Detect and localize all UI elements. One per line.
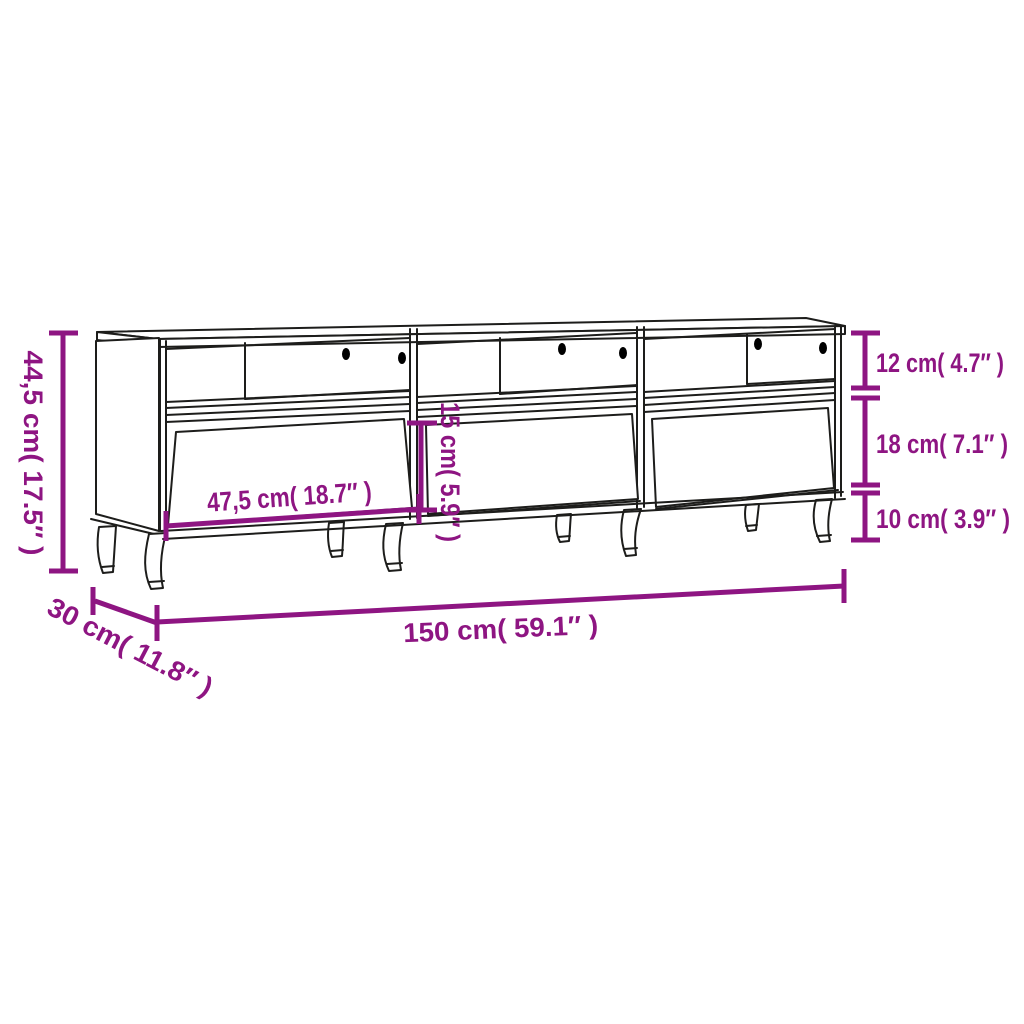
top-section-dimension-label: 12 cm( 4.7″ ) (876, 348, 1004, 378)
leg-rear-4 (745, 504, 759, 531)
drawer-height-dimension-label: 15 cm( 5.9″ ) (435, 402, 465, 542)
leg-height-dimension-label: 10 cm( 3.9″ ) (876, 504, 1010, 534)
middle-section-dimension-label: 18 cm( 7.1″ ) (876, 429, 1008, 459)
cabinet-left-panel (91, 338, 159, 534)
diagram-canvas: 44,5 cm( 17.5″ ) 15 cm( 5.9″ ) 47,5 cm( … (0, 0, 1024, 1024)
height-dimension-label: 44,5 cm( 17.5″ ) (18, 351, 48, 556)
dimension-diagram: 44,5 cm( 17.5″ ) 15 cm( 5.9″ ) 47,5 cm( … (0, 0, 1024, 1024)
